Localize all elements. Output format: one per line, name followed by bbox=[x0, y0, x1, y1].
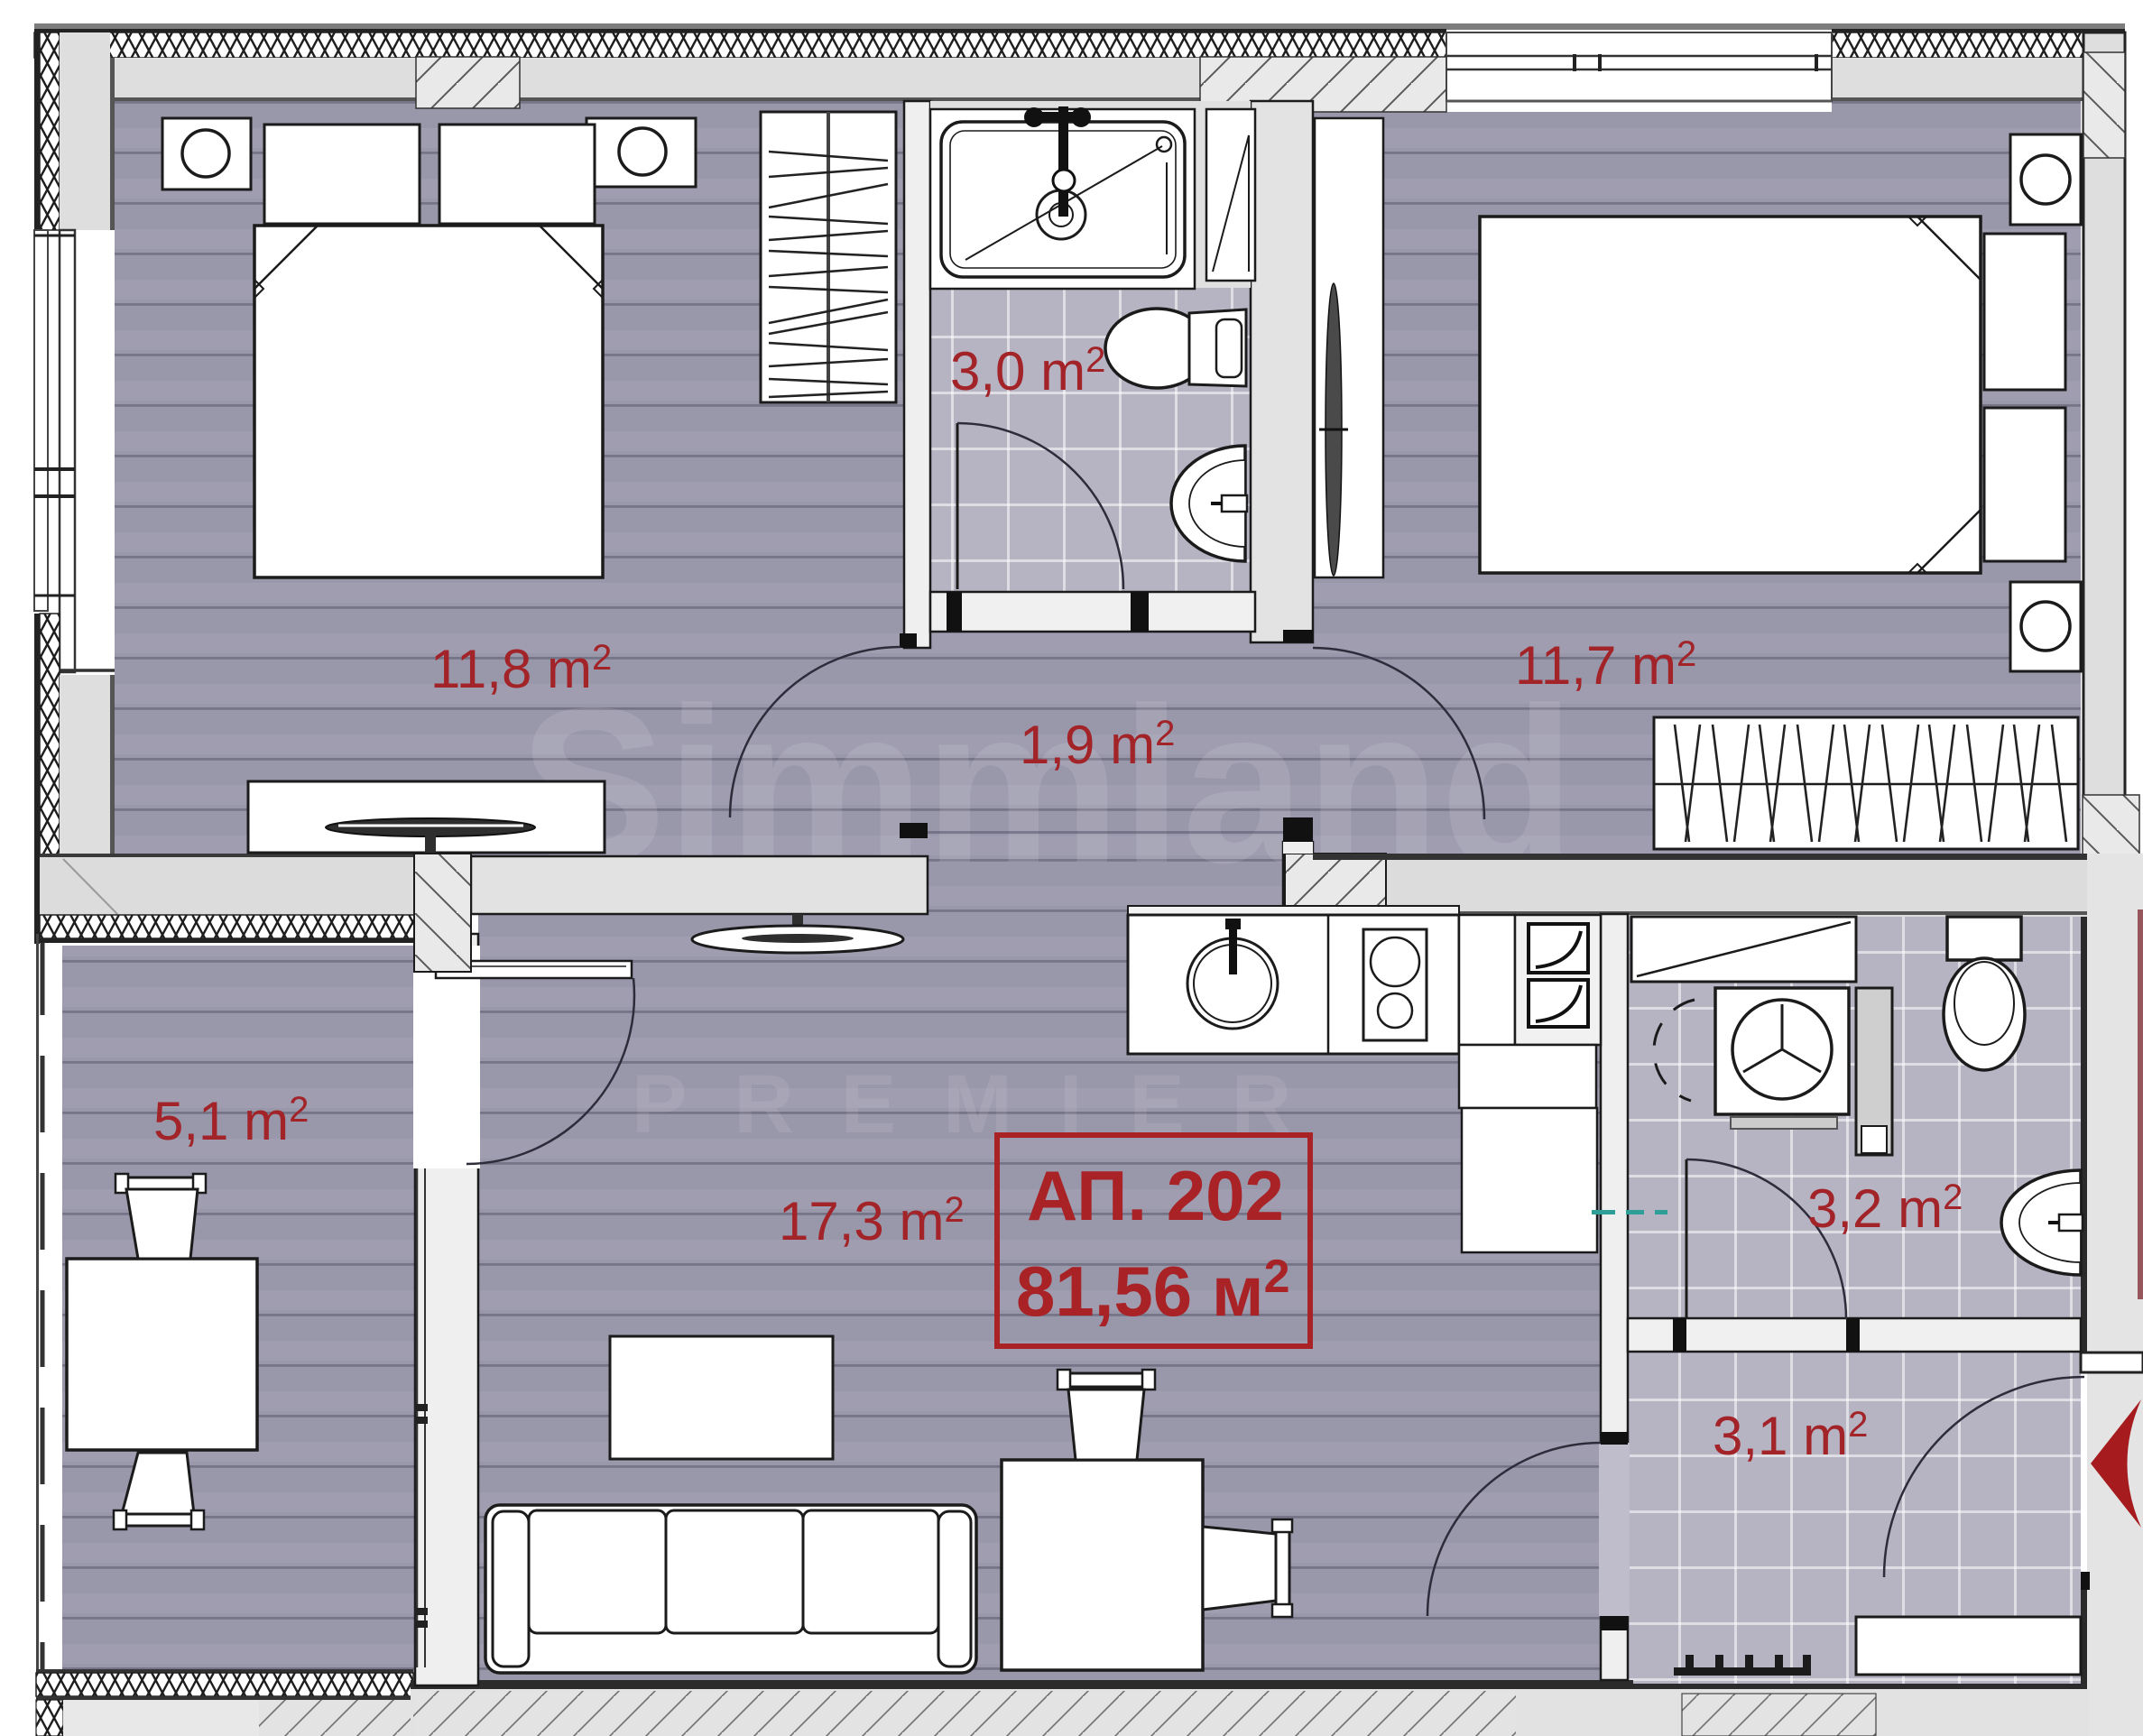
svg-text:11,7 m2: 11,7 m2 bbox=[1515, 634, 1696, 696]
svg-text:3,2 m2: 3,2 m2 bbox=[1807, 1177, 1963, 1239]
svg-text:3,1 m2: 3,1 m2 bbox=[1713, 1405, 1868, 1466]
svg-text:1,9 m2: 1,9 m2 bbox=[1020, 714, 1175, 775]
svg-text:3,0 m2: 3,0 m2 bbox=[950, 340, 1105, 402]
svg-text:11,8 m2: 11,8 m2 bbox=[430, 638, 612, 699]
svg-text:17,3 m2: 17,3 m2 bbox=[779, 1190, 965, 1251]
svg-text:АП. 202: АП. 202 bbox=[1027, 1156, 1284, 1235]
svg-text:5,1 m2: 5,1 m2 bbox=[153, 1090, 309, 1151]
svg-text:81,56 м2: 81,56 м2 bbox=[1016, 1251, 1289, 1331]
